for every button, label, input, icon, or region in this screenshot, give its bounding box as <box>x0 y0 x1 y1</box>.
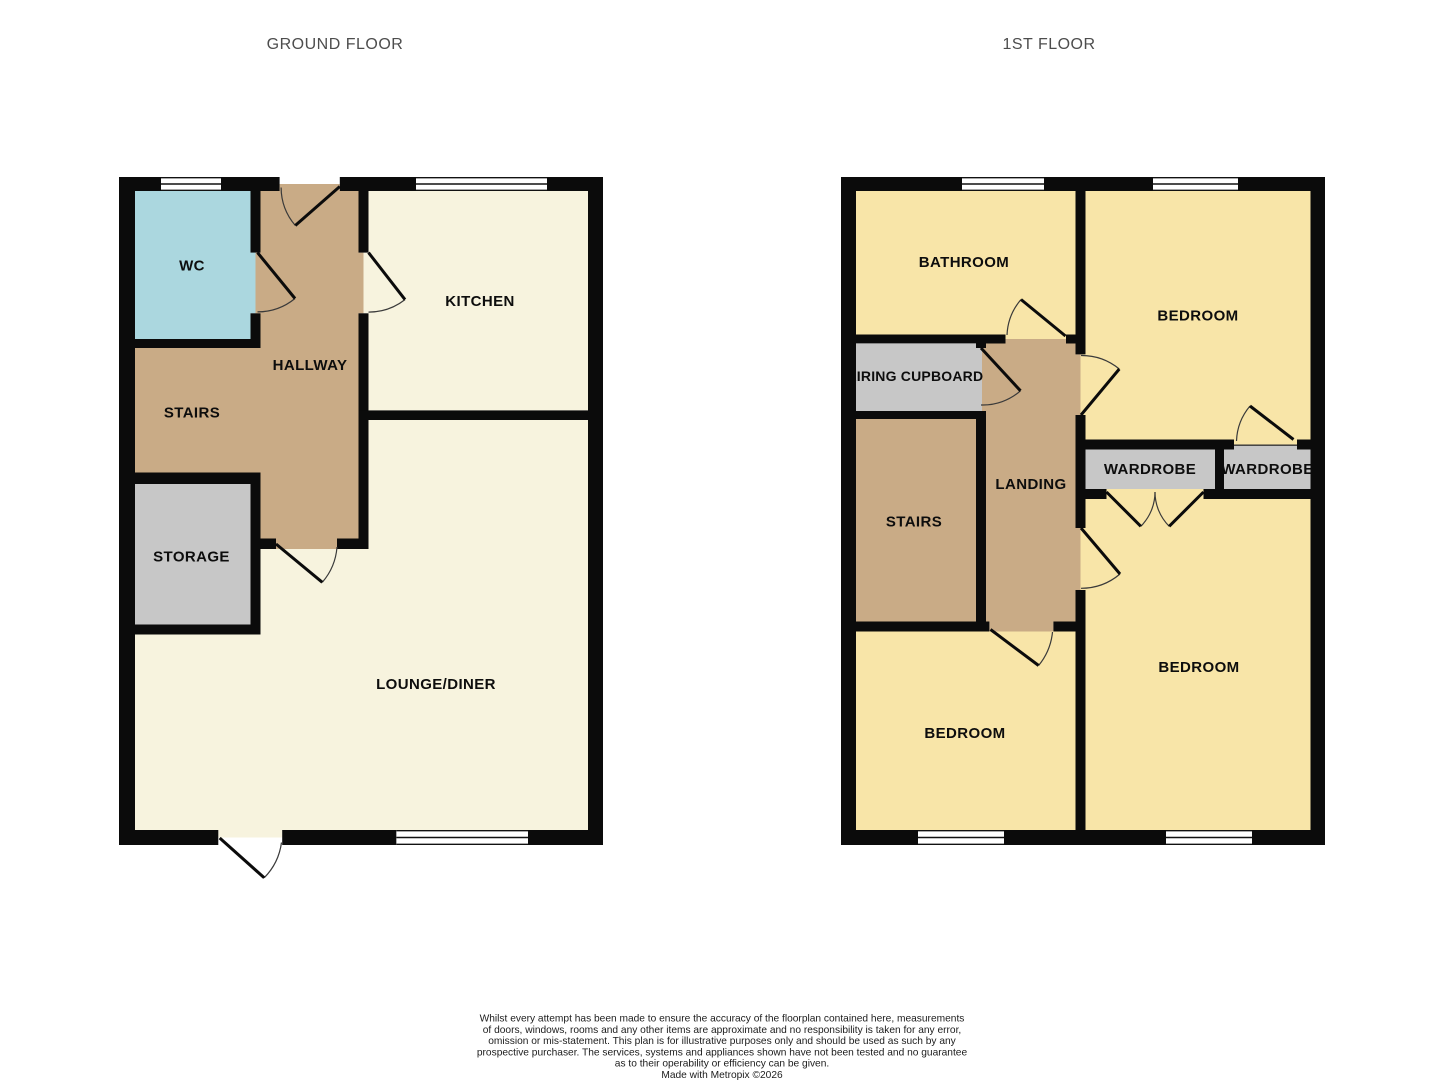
svg-text:as to their operability or eff: as to their operability or efficiency ca… <box>615 1059 829 1070</box>
svg-text:Whilst every attempt has been: Whilst every attempt has been made to en… <box>480 1014 965 1025</box>
svg-text:WARDROBE: WARDROBE <box>1221 461 1313 478</box>
svg-text:1ST FLOOR: 1ST FLOOR <box>1002 36 1095 53</box>
svg-text:LOUNGE/DINER: LOUNGE/DINER <box>376 676 496 693</box>
svg-text:LANDING: LANDING <box>995 476 1066 493</box>
svg-text:prospective purchaser. The ser: prospective purchaser. The services, sys… <box>477 1047 968 1058</box>
svg-text:BEDROOM: BEDROOM <box>924 725 1005 742</box>
svg-text:GROUND FLOOR: GROUND FLOOR <box>267 36 404 53</box>
svg-text:STAIRS: STAIRS <box>164 405 220 422</box>
svg-text:of doors, windows, rooms and a: of doors, windows, rooms and any other i… <box>483 1025 961 1036</box>
svg-text:AIRING CUPBOARD: AIRING CUPBOARD <box>847 368 984 384</box>
svg-text:BEDROOM: BEDROOM <box>1157 308 1238 325</box>
svg-text:WARDROBE: WARDROBE <box>1104 461 1196 478</box>
svg-text:omission or mis-statement. Thi: omission or mis-statement. This plan is … <box>488 1036 956 1047</box>
svg-text:STAIRS: STAIRS <box>886 514 942 531</box>
svg-text:BATHROOM: BATHROOM <box>919 254 1009 271</box>
svg-text:WC: WC <box>179 258 205 275</box>
svg-text:HALLWAY: HALLWAY <box>273 357 348 374</box>
svg-text:KITCHEN: KITCHEN <box>445 293 514 310</box>
svg-text:BEDROOM: BEDROOM <box>1158 659 1239 676</box>
svg-text:Made with Metropix ©2026: Made with Metropix ©2026 <box>661 1070 783 1080</box>
svg-text:STORAGE: STORAGE <box>153 549 230 566</box>
